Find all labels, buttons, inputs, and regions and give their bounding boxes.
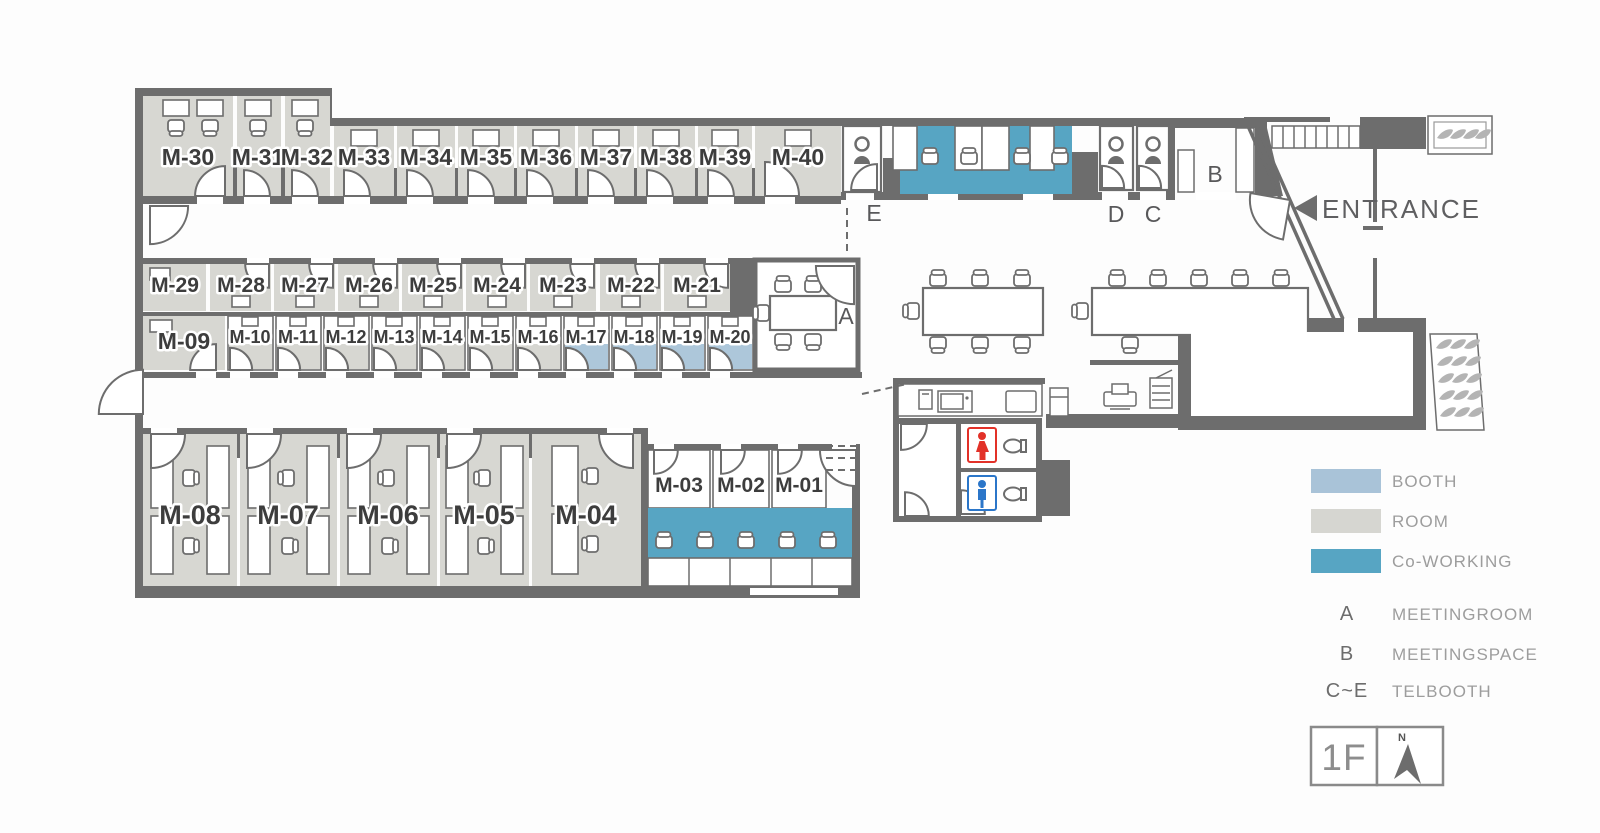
legend-key-a-label: MEETINGROOM	[1392, 605, 1533, 624]
legend-key-ce: C~E	[1326, 680, 1368, 702]
room-label: M-37	[580, 144, 632, 170]
fridge-icon	[1050, 388, 1068, 416]
floor-label: 1F	[1321, 737, 1366, 778]
big-room	[1191, 332, 1413, 416]
zone-label-b: B	[1207, 161, 1222, 187]
room-label: M-13	[373, 327, 414, 347]
room-label: M-38	[640, 144, 693, 170]
room-label: M-10	[229, 327, 270, 347]
mid-upper-rooms: M-29 M-28 M-27 M-26 M-25 M-24 M-23 M-22 …	[143, 264, 730, 311]
floor-plan: M-30 M-31 M-32 M-33 M-34 M-35 M-36 M-37 …	[0, 0, 1600, 833]
room-label: M-09	[158, 328, 210, 354]
room-label: M-16	[517, 327, 558, 347]
shoe-shelf	[1272, 126, 1360, 148]
room-label: M-23	[539, 274, 587, 297]
room-label: M-15	[469, 327, 510, 347]
top-strip: E D C B	[843, 126, 1254, 227]
meeting-room-a: A	[753, 260, 858, 370]
room-label: M-18	[613, 327, 654, 347]
printer-icon	[1104, 384, 1136, 409]
legend-key-ce-label: TELBOOTH	[1392, 682, 1492, 701]
floor-plan-page: M-30 M-31 M-32 M-33 M-34 M-35 M-36 M-37 …	[0, 0, 1600, 833]
room-label: M-25	[409, 274, 457, 297]
kitchenette	[898, 384, 1068, 416]
legend-key-b-label: MEETINGSPACE	[1392, 645, 1538, 664]
top-row-rooms: M-30 M-31 M-32 M-33 M-34 M-35 M-36 M-37 …	[143, 96, 841, 196]
zone-label-c: C	[1145, 201, 1162, 227]
room-label: M-32	[281, 144, 333, 170]
floor-indicator: 1F N	[1311, 727, 1443, 785]
room-label: M-31	[232, 144, 285, 170]
room-label: M-24	[473, 274, 521, 297]
room-label: M-30	[162, 144, 214, 170]
room-label: M-05	[453, 500, 515, 530]
legend-swatch-coworking	[1311, 549, 1381, 573]
sink-icon	[1006, 391, 1036, 412]
room-label: M-36	[520, 144, 572, 170]
room-label: M-33	[338, 144, 390, 170]
planter-top	[1428, 116, 1492, 154]
room-label: M-26	[345, 274, 393, 297]
room-label: M-01	[775, 474, 823, 497]
room-label: M-17	[565, 327, 606, 347]
coworking-area-bottom	[648, 508, 852, 586]
room-label: M-03	[655, 474, 703, 497]
legend-swatch-room	[1311, 509, 1381, 533]
toilet-icon	[1004, 440, 1026, 453]
room-label: M-07	[257, 500, 319, 530]
toilet-icon	[1004, 488, 1026, 501]
room-label: M-12	[325, 327, 366, 347]
womens-wc-icon	[968, 428, 996, 462]
room-label: M-20	[709, 327, 750, 347]
room-label: M-04	[555, 500, 617, 530]
room-label: M-21	[673, 274, 721, 297]
legend-label-room: ROOM	[1392, 512, 1449, 531]
zone-label-a: A	[838, 303, 854, 329]
room-label: M-11	[278, 327, 318, 347]
compass-north-label: N	[1398, 732, 1406, 744]
room-label: M-06	[357, 500, 419, 530]
room-label: M-02	[717, 474, 765, 497]
room-label: M-19	[661, 327, 702, 347]
room-label: M-35	[460, 144, 513, 170]
microwave-icon	[938, 391, 972, 412]
room-label: M-27	[281, 274, 329, 297]
bottom-rooms: M-08 M-07 M-06 M-05 M-04	[143, 434, 641, 586]
legend-label-coworking: Co-WORKING	[1392, 552, 1513, 571]
planter-right	[1430, 334, 1484, 430]
room-label: M-34	[400, 144, 453, 170]
legend: BOOTH ROOM Co-WORKING A MEETINGROOM B ME…	[1311, 469, 1538, 702]
zone-label-e: E	[866, 200, 881, 226]
room-label: M-14	[421, 327, 462, 347]
room-label: M-08	[159, 500, 221, 530]
cup-icon	[919, 390, 932, 409]
mens-wc-icon	[968, 476, 996, 510]
legend-label-booth: BOOTH	[1392, 472, 1457, 491]
room-label: M-28	[217, 274, 265, 297]
legend-swatch-booth	[1311, 469, 1381, 493]
bottom-small-rooms: M-03 M-02 M-01	[648, 450, 856, 508]
zone-label-d: D	[1108, 201, 1125, 227]
mid-lower-rooms: M-09 M-10 M-11 M-12 M-13 M-14 M-15 M-16 …	[143, 316, 753, 370]
room-label: M-29	[151, 274, 199, 297]
entrance-label: ENTRANCE	[1322, 194, 1481, 224]
room-labels: M-30 M-31 M-32 M-33 M-34 M-35 M-36 M-37 …	[162, 144, 824, 170]
room-label: M-40	[772, 144, 824, 170]
room-label: M-39	[699, 144, 751, 170]
legend-key-a: A	[1340, 603, 1354, 625]
legend-key-b: B	[1340, 643, 1354, 665]
copier-icon	[1150, 370, 1172, 408]
room-label: M-22	[607, 274, 655, 297]
